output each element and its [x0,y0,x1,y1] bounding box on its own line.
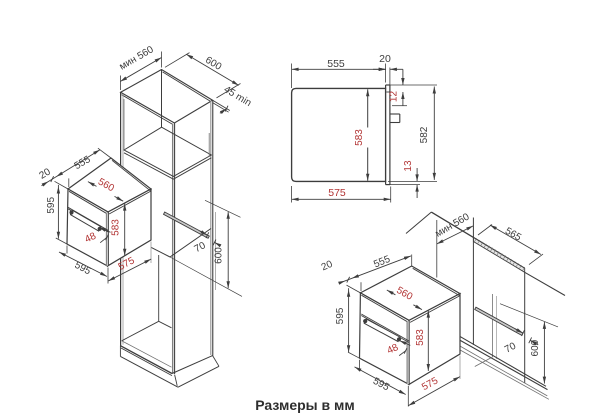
svg-text:583: 583 [354,129,365,146]
svg-text:13: 13 [403,160,414,172]
svg-text:600: 600 [214,247,225,264]
svg-text:595: 595 [335,307,346,324]
svg-text:555: 555 [327,58,345,70]
svg-text:583: 583 [111,219,122,236]
svg-text:575: 575 [328,187,346,199]
svg-text:583: 583 [415,329,426,346]
svg-text:595: 595 [46,197,57,214]
svg-text:Размеры в мм: Размеры в мм [255,397,354,413]
svg-text:12: 12 [389,91,400,103]
svg-text:582: 582 [419,126,430,143]
svg-text:20: 20 [379,53,391,65]
svg-text:600: 600 [530,339,541,356]
